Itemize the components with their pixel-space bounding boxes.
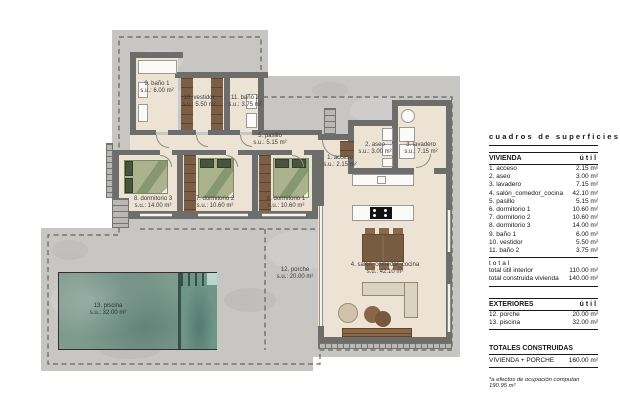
util-column-header: útil [580, 301, 598, 308]
vivienda-header: VIVIENDA [489, 155, 522, 162]
entry-steps-north [324, 108, 336, 134]
pillow [125, 161, 133, 176]
total-row: total útil interior110.00 m² [489, 267, 598, 275]
table-row: 12. porche20.00 m² [489, 311, 598, 319]
table-row: 1. acceso2.15 m² [489, 165, 598, 173]
spacer [489, 330, 598, 345]
room-label-salon: 4. salón_comedor_cocinas.u.: 42.10 m² [338, 262, 432, 276]
room-label-acceso: 1. accesos.u.: 2.15 m² [314, 155, 366, 169]
wall [113, 150, 160, 155]
table-row: 9. baño 16.00 m² [489, 231, 598, 239]
spacer [489, 287, 598, 298]
vivienda-header-row: VIVIENDA útil [489, 152, 598, 165]
table-row: 8. dormitorio 314.00 m² [489, 222, 598, 230]
room-label-dormitorio2: 7. dormitorio 2s.u.: 10.60 m² [184, 196, 246, 210]
pouf [375, 311, 391, 327]
window [447, 210, 451, 252]
table-row: 11. baño 23.75 m² [489, 247, 598, 255]
wall [392, 100, 452, 106]
room-label-porche: 12. porches.u.: 20.00 m² [268, 267, 322, 281]
totales-row: VIVIENDA + PORCHE 160.00 m² [489, 355, 598, 368]
table-row: 3. lavadero7.15 m² [489, 181, 598, 189]
room-label-lavadero: 3. lavaderos.u.: 7.15 m² [396, 142, 446, 156]
sofa-chaise [404, 282, 418, 318]
burner [384, 214, 387, 217]
panel-title: cuadros de superficies [489, 132, 598, 146]
room-label-aseo: 2. aseos.u.: 3.00 m² [352, 142, 398, 156]
exteriores-header-row: EXTERIORES útil [489, 298, 598, 311]
surfaces-panel: cuadros de superficies VIVIENDA útil 1. … [489, 132, 598, 389]
floorplan-sheet: 1. accesos.u.: 2.15 m² 2. aseos.u.: 3.00… [0, 0, 620, 406]
window [140, 213, 172, 217]
table-row: 4. salón_comedor_cocina42.10 m² [489, 190, 598, 198]
washer [399, 127, 415, 142]
burner [373, 214, 376, 217]
exterior-wall-hatch [106, 143, 113, 198]
table-row: 2. aseo3.00 m² [489, 173, 598, 181]
table-row: 10. vestidor5.50 m² [489, 239, 598, 247]
pillow [125, 178, 133, 193]
laundry-sink [401, 109, 415, 123]
window-porch-glazing [319, 206, 323, 326]
occupancy-footnote: *a efectos de ocupación computan 190.95 … [489, 377, 598, 389]
burner [373, 209, 376, 212]
exteriores-header: EXTERIORES [489, 301, 533, 308]
building-plan: 1. accesos.u.: 2.15 m² 2. aseos.u.: 3.00… [0, 0, 498, 406]
pillow [275, 159, 289, 168]
total-row: total construida vivienda140.00 m² [489, 275, 598, 286]
room-label-dormitorio1: 6. dormitorio 1s.u.: 10.60 m² [256, 196, 316, 210]
room-label-bano1: 9. baño 1s.u.: 6.00 m² [132, 81, 182, 95]
tv-console [342, 328, 412, 337]
room-label-bano2: 11. baño 2s.u.: 3.75 m² [218, 95, 272, 109]
wall [318, 174, 324, 206]
window [198, 213, 248, 217]
room-label-piscina: 13. piscinas.u.: 32.00 m² [80, 303, 136, 317]
dining-table [362, 234, 404, 262]
toilet [382, 128, 393, 141]
wall [348, 120, 398, 126]
kitchen-sink [377, 176, 386, 184]
pool-steps [181, 273, 207, 286]
wall [168, 130, 196, 135]
table-row: 6. dormitorio 110.60 m² [489, 206, 598, 214]
window [447, 284, 451, 332]
burner [384, 209, 387, 212]
pouf [338, 303, 358, 323]
room-label-dormitorio3: 8. dormitorio 3s.u.: 14.00 m² [120, 196, 186, 210]
totales-construidas-header: TOTALES CONSTRUIDAS [489, 345, 598, 355]
wall [130, 52, 183, 58]
toilet [138, 104, 148, 122]
table-row: 13. piscina32.00 m² [489, 319, 598, 330]
wall [130, 130, 156, 135]
pool-step-landing [207, 273, 217, 285]
table-row: 7. dormitorio 210.60 m² [489, 214, 598, 222]
room-label-pasillo: 5. pasillos.u.: 5.15 m² [244, 133, 296, 147]
washbasin [382, 158, 393, 167]
wall [434, 168, 446, 174]
window [262, 213, 306, 217]
toilet [246, 113, 257, 128]
pillow [200, 159, 214, 168]
total-label: total [489, 257, 598, 267]
wall [208, 130, 240, 135]
table-row: 5. pasillo5.15 m² [489, 198, 598, 206]
shower [138, 60, 177, 74]
porch-edge-hatch [318, 343, 452, 349]
util-column-header: útil [580, 155, 598, 162]
